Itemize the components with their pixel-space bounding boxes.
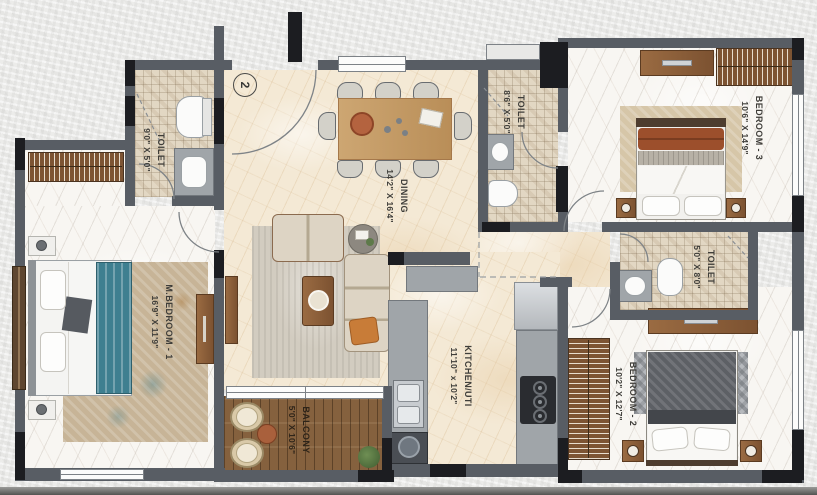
room-name: BEDROOM - 3 <box>754 96 764 160</box>
room-dims: 5'0" X 8'0" <box>691 245 704 289</box>
room-name: TOILET <box>706 250 716 284</box>
entrance-door-number: 2 <box>233 73 257 97</box>
label-balcony: BALCONY 5'0" X 10'6" <box>286 406 312 455</box>
label-kitchen: KITCHEN/UTI 11'10" x 10'2" <box>448 345 474 406</box>
room-name: M.BEDROOM - 1 <box>164 284 174 359</box>
room-name: TOILET <box>516 95 526 129</box>
label-toilet-right: TOILET 5'0" X 8'0" <box>691 245 717 289</box>
room-dims: 10'2" X 12'7" <box>613 362 626 426</box>
label-master-toilet: TOILET 9'0" X 5'0" <box>141 128 167 172</box>
door-number-text: 2 <box>238 82 252 89</box>
label-bedroom2: BEDROOM - 2 10'2" X 12'7" <box>613 362 639 426</box>
room-dims: 10'6" X 14'9" <box>739 96 752 160</box>
room-name: BALCONY <box>301 406 311 453</box>
room-dims: 16'9" X 11'9" <box>149 284 162 359</box>
room-name: BEDROOM - 2 <box>628 362 638 426</box>
room-name: TOILET <box>156 133 166 167</box>
room-name: DINING <box>399 179 409 213</box>
label-common-toilet: TOILET 8'6" X 5'0" <box>501 90 527 134</box>
room-name: KITCHEN/UTI <box>463 345 473 406</box>
label-bedroom3: BEDROOM - 3 10'6" X 14'9" <box>739 96 765 160</box>
sheet-bottom-edge <box>0 487 817 495</box>
room-dims: 8'6" X 5'0" <box>501 90 514 134</box>
label-master-bedroom: M.BEDROOM - 1 16'9" X 11'9" <box>149 284 175 359</box>
label-dining: DINING 14'2" X 16'4" <box>384 169 410 222</box>
room-dims: 11'10" x 10'2" <box>448 345 461 406</box>
room-dims: 14'2" X 16'4" <box>384 169 397 222</box>
floor-plan: TOILET 9'0" X 5'0" DINING 14'2" X 16'4" … <box>0 0 817 495</box>
room-dims: 9'0" X 5'0" <box>141 128 154 172</box>
room-dims: 5'0" X 10'6" <box>286 406 299 455</box>
